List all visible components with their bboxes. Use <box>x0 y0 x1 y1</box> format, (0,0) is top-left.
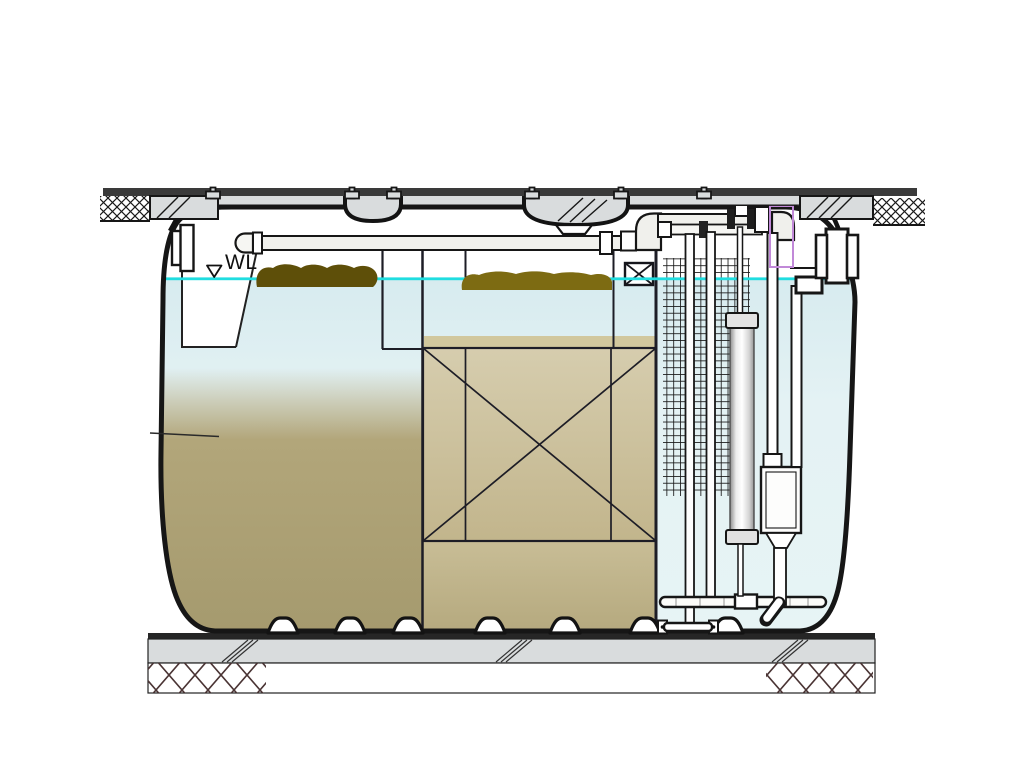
foundation-slab-top-edge <box>148 633 875 639</box>
ground-slab-band <box>150 196 873 205</box>
slab-block-left <box>150 196 218 219</box>
chamber2-bottom-sludge <box>423 541 656 633</box>
gravel-hatch-right <box>766 663 873 693</box>
pump-box <box>761 467 801 533</box>
septic-tank-cross-section-diagram: WL <box>0 0 1024 768</box>
water-level-label: WL <box>225 251 258 275</box>
chamber1-sludge <box>158 368 424 634</box>
cylinder-top-cap <box>726 313 758 328</box>
pipe-reducer <box>621 232 636 251</box>
foundation <box>148 633 875 693</box>
pipe-coupling <box>600 232 612 254</box>
foundation-slab <box>148 639 875 663</box>
soil-hatch-left <box>100 196 150 221</box>
scum-layer-chamber1 <box>256 264 377 287</box>
air-pipe-union <box>658 222 671 237</box>
transfer-junction-box <box>625 263 653 285</box>
soil-hatch-right <box>873 198 925 225</box>
cylinder-lower-rod <box>738 544 743 596</box>
riser-cover-tab <box>556 225 592 234</box>
cylinder-bottom-cap <box>726 530 758 544</box>
pump-down-pipe <box>774 548 786 605</box>
inlet-sleeve <box>172 225 194 271</box>
outlet-weir-box <box>796 277 822 293</box>
air-drop-pipe-1 <box>686 234 695 626</box>
slab-block-right <box>800 196 873 219</box>
air-drop-pipe-2 <box>707 232 716 598</box>
valve-assembly <box>727 205 769 232</box>
diffuser-support-foot <box>664 623 712 631</box>
gravel-hatch-left <box>148 663 266 693</box>
outlet-sleeve <box>816 229 858 283</box>
cylinder-hanger-rod <box>738 227 743 315</box>
transfer-pipe-end-cap <box>236 234 254 253</box>
cylinder-body <box>730 327 754 531</box>
pump-inlet-fitting <box>764 454 782 467</box>
ground-surface-line <box>103 188 917 196</box>
outlet-drop-pipe <box>792 286 802 467</box>
diagram-drawing <box>0 0 1024 768</box>
manhole-riser-1 <box>345 196 401 221</box>
